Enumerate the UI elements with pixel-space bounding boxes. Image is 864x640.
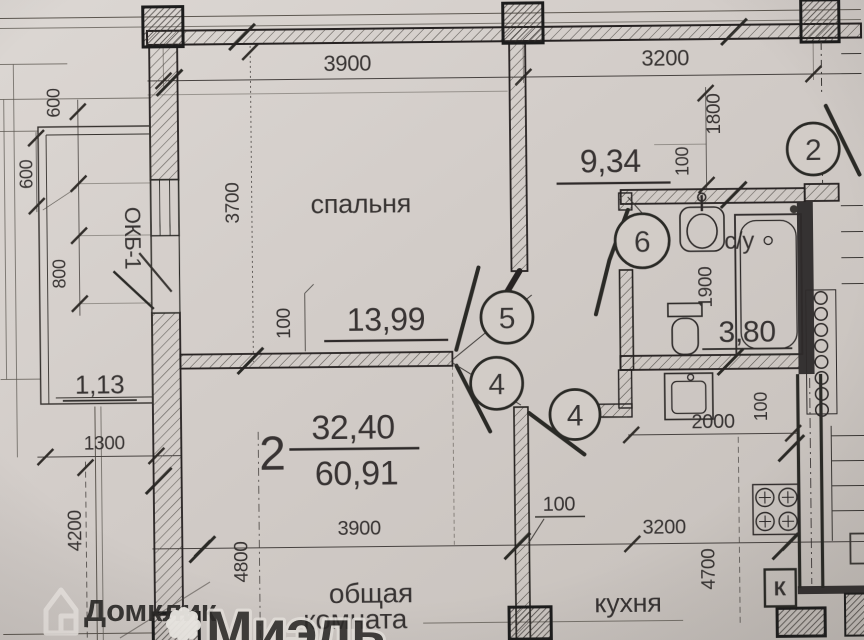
photo-vignette (0, 0, 864, 640)
floorplan-photo: К 3900 3200 3900 3200 600 600 800 3700 1… (0, 0, 864, 640)
